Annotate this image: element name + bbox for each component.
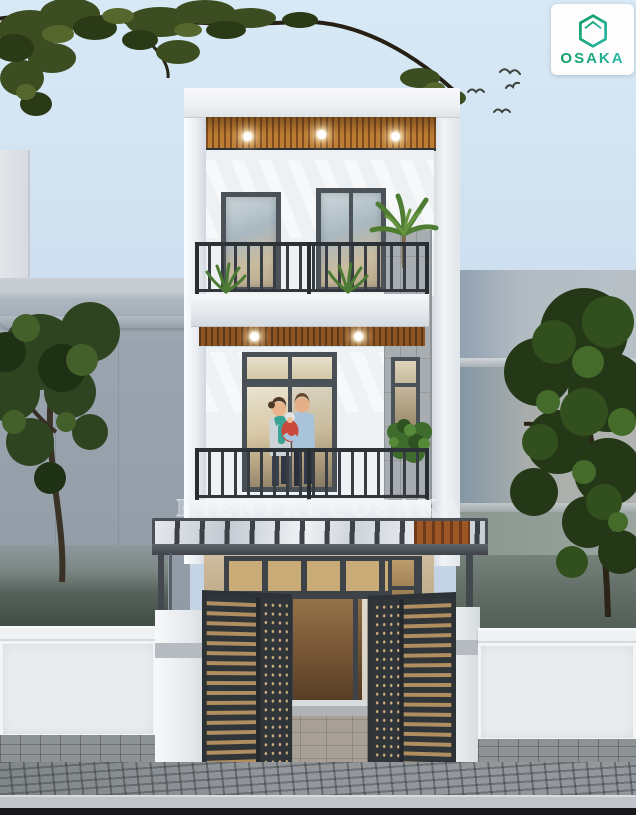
gate-perforations — [372, 599, 399, 772]
downlight — [250, 332, 259, 341]
canopy-wood-panel — [414, 521, 470, 546]
pillar-accent-band — [155, 643, 207, 658]
balcony-plant — [325, 258, 371, 294]
gate-perforations — [260, 597, 288, 780]
roof-parapet — [184, 88, 460, 118]
street-tree-right — [488, 272, 636, 617]
brand-name: OSAKA — [560, 50, 624, 67]
balcony-wood-soffit — [199, 327, 425, 346]
gate-slats — [403, 597, 451, 775]
downlight — [391, 132, 400, 141]
fence-panel-left — [0, 641, 156, 737]
watermark: KIENTRUCOSAKA — [168, 494, 474, 524]
fence-rail-right — [478, 628, 636, 643]
door-transom — [247, 357, 332, 383]
canopy-fascia-beam — [152, 544, 488, 555]
curb — [0, 795, 636, 809]
downlight — [243, 132, 252, 141]
downlight — [354, 332, 363, 341]
fence-panel-right — [478, 643, 636, 741]
fence-rail-left — [0, 626, 156, 641]
downlight — [317, 130, 326, 139]
background-building-far-left — [0, 150, 30, 286]
street-tree-left — [0, 282, 160, 582]
gate-leaf-left — [202, 590, 292, 788]
render-canvas: KIENTRUCOSAKA — [0, 0, 636, 815]
balcony-plant — [203, 258, 249, 294]
hexagon-house-icon — [575, 13, 611, 49]
watermark-text: KIENTRUCOSAKA — [177, 495, 466, 523]
road-edge — [0, 808, 636, 815]
gate-pillar-left — [155, 610, 207, 778]
gate-slats — [207, 595, 256, 783]
gate-leaf-right — [368, 592, 456, 780]
brand-logo: OSAKA — [551, 4, 634, 75]
third-floor-balcony-parapet — [191, 294, 429, 327]
